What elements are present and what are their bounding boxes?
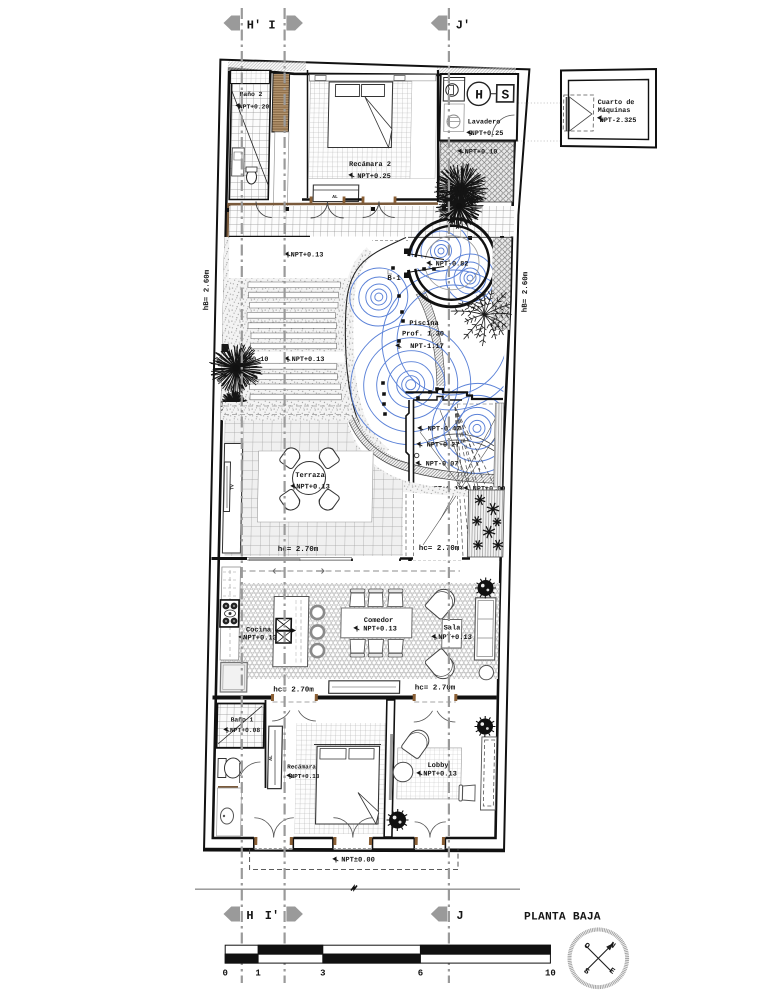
svg-text:3: 3 bbox=[320, 969, 325, 979]
svg-text:NPT-0.47: NPT-0.47 bbox=[428, 426, 461, 434]
svg-text:Baño 2: Baño 2 bbox=[240, 91, 263, 98]
svg-text:Recámara: Recámara bbox=[287, 764, 316, 771]
svg-text:Piscina: Piscina bbox=[409, 320, 439, 328]
svg-text:NPT+0.25: NPT+0.25 bbox=[357, 173, 391, 181]
svg-text:hc= 2.70m: hc= 2.70m bbox=[273, 687, 314, 695]
svg-text:Comedor: Comedor bbox=[364, 617, 394, 625]
svg-text:AL: AL bbox=[332, 194, 338, 200]
svg-text:Máquinas: Máquinas bbox=[598, 107, 631, 115]
svg-text:6: 6 bbox=[418, 969, 423, 979]
svg-text:NPT-0.82: NPT-0.82 bbox=[436, 261, 469, 269]
svg-text:NPT+0.13: NPT+0.13 bbox=[423, 771, 457, 779]
svg-text:NPT-1.17: NPT-1.17 bbox=[410, 343, 444, 351]
svg-text:1: 1 bbox=[255, 969, 261, 979]
svg-text:NPT-0.27: NPT-0.27 bbox=[427, 442, 460, 450]
svg-text:NPT+0.25: NPT+0.25 bbox=[471, 130, 504, 138]
svg-text:hc= 2.70m: hc= 2.70m bbox=[419, 545, 460, 553]
svg-text:B-1: B-1 bbox=[387, 275, 401, 283]
svg-text:hB= 2.60m: hB= 2.60m bbox=[522, 271, 531, 312]
svg-text:Cocina: Cocina bbox=[246, 627, 272, 635]
svg-text:I': I' bbox=[265, 909, 279, 923]
svg-text:Recámara 2: Recámara 2 bbox=[349, 161, 391, 169]
svg-text:NPT+0.13: NPT+0.13 bbox=[438, 634, 472, 642]
svg-text:H: H bbox=[246, 909, 253, 923]
svg-text:Cuarto de: Cuarto de bbox=[598, 99, 635, 107]
svg-text:NPT+0.08: NPT+0.08 bbox=[230, 727, 261, 734]
svg-text:J: J bbox=[456, 909, 463, 923]
svg-text:NPT+0.13: NPT+0.13 bbox=[296, 484, 330, 492]
svg-text:S: S bbox=[501, 87, 509, 102]
svg-text:NPT+0.13: NPT+0.13 bbox=[292, 356, 325, 364]
svg-text:Terraza: Terraza bbox=[295, 472, 325, 480]
svg-text:H: H bbox=[475, 88, 483, 103]
svg-text:hB= 2.60m: hB= 2.60m bbox=[203, 269, 212, 310]
svg-text:Lobby: Lobby bbox=[427, 762, 449, 770]
svg-text:0: 0 bbox=[222, 969, 227, 979]
svg-text:NPT+0.13: NPT+0.13 bbox=[291, 773, 320, 780]
svg-text:10: 10 bbox=[545, 969, 556, 979]
svg-text:H': H' bbox=[247, 19, 261, 33]
svg-text:NPT+0.20: NPT+0.20 bbox=[239, 104, 270, 111]
svg-text:NPT-2.325: NPT-2.325 bbox=[600, 117, 637, 125]
svg-text:J': J' bbox=[456, 19, 470, 33]
svg-text:NPT+0.10: NPT+0.10 bbox=[465, 149, 498, 157]
svg-text:AL: AL bbox=[268, 755, 274, 761]
svg-text:TV: TV bbox=[229, 484, 235, 490]
svg-text:NPT+0.13: NPT+0.13 bbox=[243, 635, 277, 643]
svg-text:Prof. 1.30: Prof. 1.30 bbox=[402, 331, 444, 339]
svg-text:I: I bbox=[268, 19, 275, 33]
svg-text:PLANTA BAJA: PLANTA BAJA bbox=[524, 912, 601, 924]
svg-text:NPT±0.00: NPT±0.00 bbox=[341, 857, 375, 865]
svg-text:NPT-0.07: NPT-0.07 bbox=[426, 461, 459, 469]
svg-text:NPT+0.13: NPT+0.13 bbox=[291, 252, 324, 260]
svg-text:NPT+0.13: NPT+0.13 bbox=[363, 626, 397, 634]
svg-text:Sala: Sala bbox=[444, 625, 462, 633]
